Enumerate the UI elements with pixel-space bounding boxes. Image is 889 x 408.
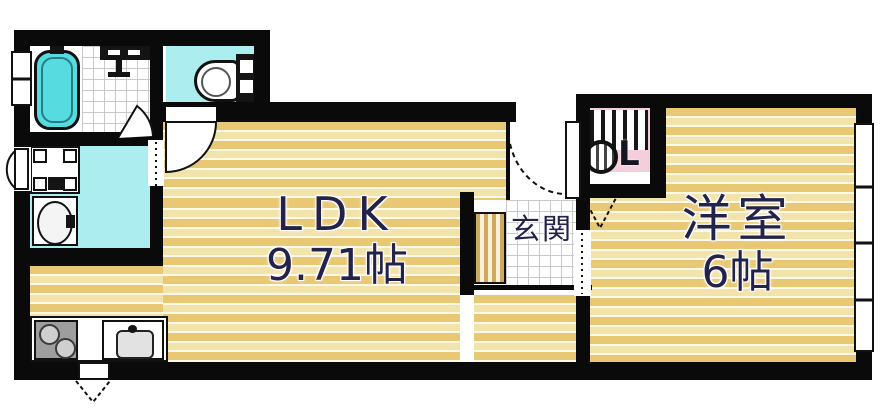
- wall: [150, 102, 516, 122]
- toilet-bowl: [194, 60, 240, 102]
- wall: [14, 30, 30, 380]
- washing-machine-pan: [30, 146, 80, 194]
- washbasin-faucet: [66, 215, 75, 228]
- bathtub-faucet: [50, 46, 64, 54]
- entry-door-swing-arc: [508, 126, 566, 194]
- wall: [506, 122, 510, 200]
- wall: [18, 132, 163, 146]
- wall: [460, 192, 474, 295]
- shoe-cabinet: [474, 212, 506, 284]
- ldk-floor: [474, 295, 578, 364]
- wall: [576, 108, 590, 232]
- wall: [14, 362, 872, 380]
- shower-counter: [100, 46, 150, 60]
- western-room-label: 洋室 6帖: [655, 192, 820, 300]
- floor-plan: L: [0, 0, 889, 408]
- wall: [650, 94, 666, 198]
- ldk-room-size: 9.71帖: [212, 240, 462, 292]
- shower-faucet-bar: [108, 72, 130, 77]
- wall: [856, 94, 872, 380]
- wall: [584, 184, 666, 198]
- wall: [150, 122, 163, 258]
- entrance-step-edge: [474, 285, 592, 290]
- washer-drain: [48, 177, 64, 190]
- wall: [576, 94, 872, 108]
- kitchen-hatch-arrow: [76, 381, 110, 402]
- entrance-label: 玄関: [506, 206, 578, 248]
- western-room-size: 6帖: [655, 246, 820, 300]
- bathtub: [34, 50, 80, 130]
- ldk-label: LDK 9.71帖: [212, 188, 462, 292]
- kitchen-sink-unit: [102, 320, 164, 360]
- wall: [14, 30, 270, 46]
- bathtub-inner-rim: [41, 57, 73, 123]
- kitchen-stove: [34, 320, 78, 360]
- western-room-name: 洋室: [655, 192, 820, 246]
- sink-faucet: [128, 325, 137, 333]
- washbasin: [32, 196, 78, 246]
- ldk-room-name: LDK: [212, 188, 462, 240]
- wall: [18, 248, 163, 266]
- closet-label: L: [618, 134, 640, 174]
- wall: [576, 296, 590, 364]
